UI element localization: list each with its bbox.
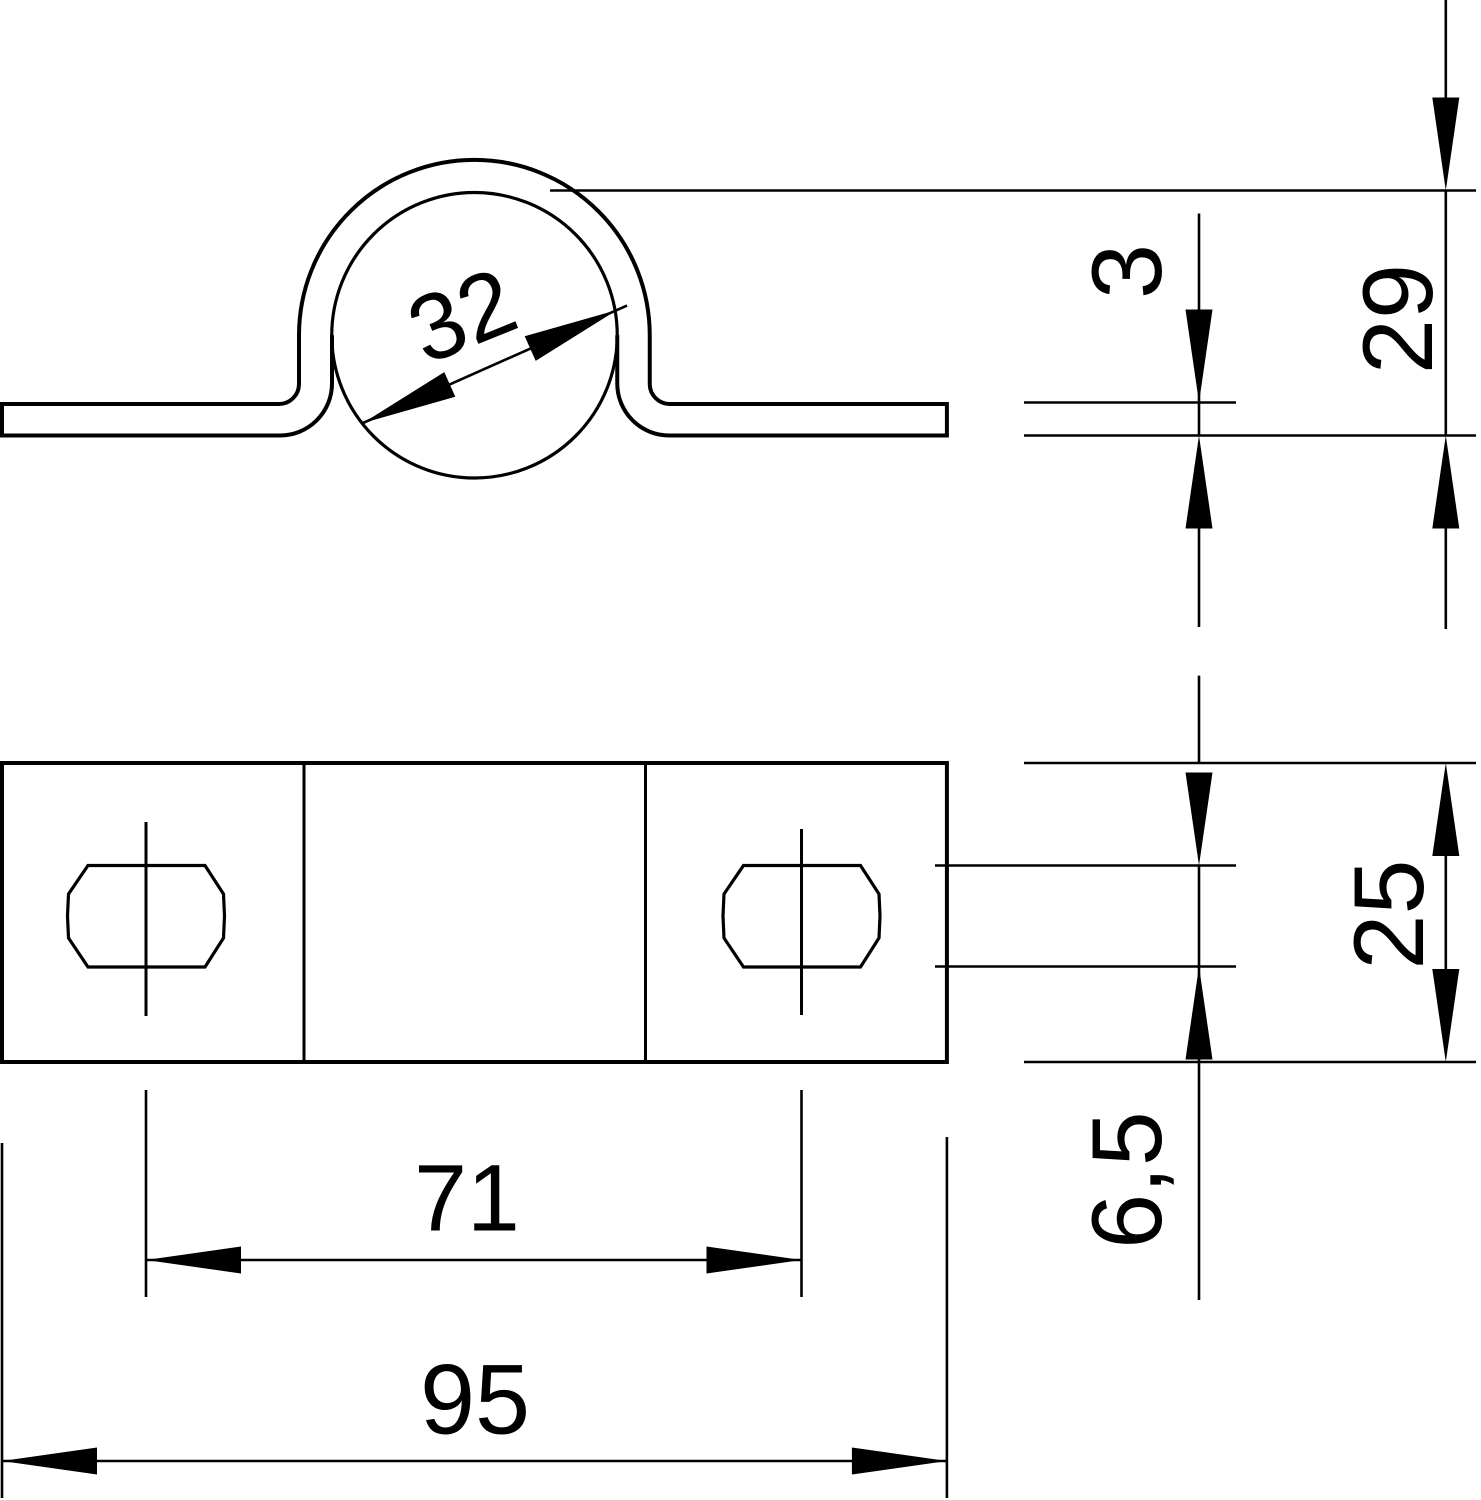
- svg-text:25: 25: [1333, 859, 1444, 969]
- svg-text:6,5: 6,5: [1071, 1111, 1182, 1249]
- svg-text:71: 71: [414, 1146, 520, 1252]
- svg-text:3: 3: [1071, 244, 1182, 299]
- svg-text:29: 29: [1342, 264, 1453, 374]
- svg-text:95: 95: [420, 1344, 530, 1455]
